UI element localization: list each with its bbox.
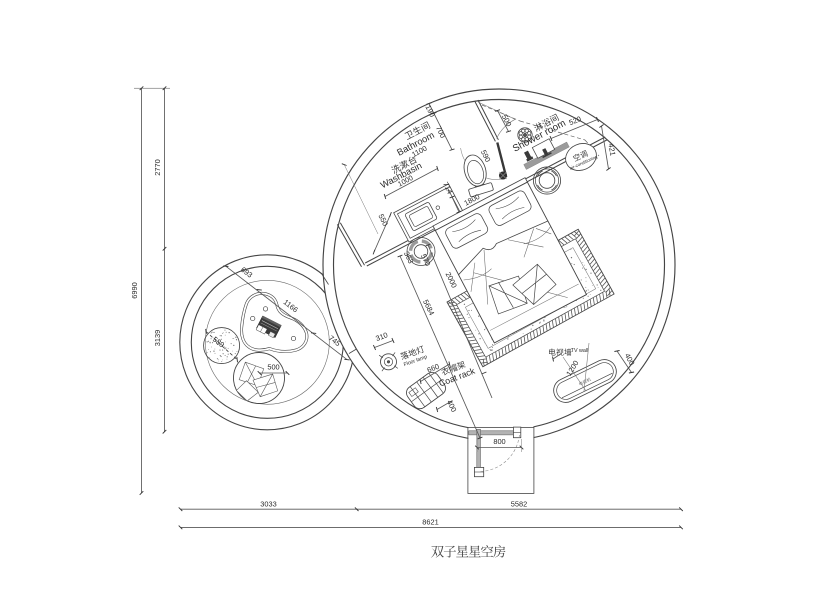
svg-text:8621: 8621 (422, 518, 438, 527)
svg-text:2770: 2770 (153, 159, 162, 175)
svg-text:TV wall: TV wall (571, 348, 589, 354)
svg-text:800: 800 (493, 437, 505, 446)
svg-text:6990: 6990 (130, 282, 139, 298)
svg-text:5582: 5582 (511, 500, 527, 509)
svg-text:500: 500 (267, 363, 279, 372)
svg-text:3139: 3139 (153, 330, 162, 346)
svg-text:3033: 3033 (260, 500, 276, 509)
